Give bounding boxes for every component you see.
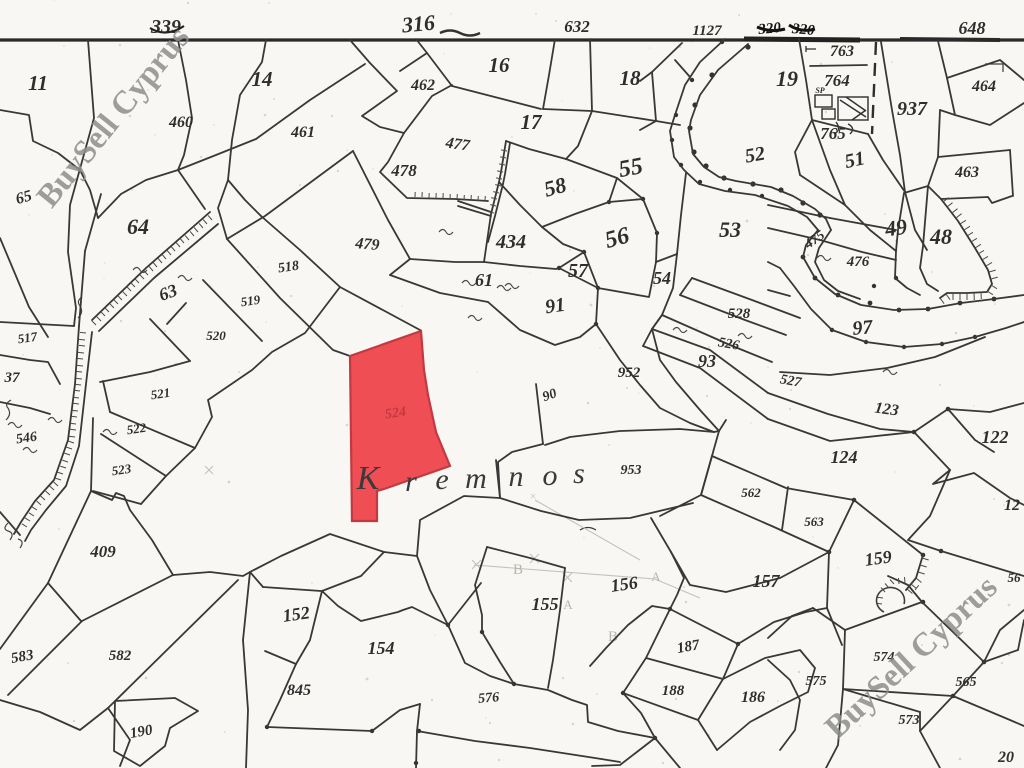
svg-text:97: 97 (852, 316, 875, 340)
svg-text:573: 573 (899, 713, 920, 728)
svg-text:461: 461 (290, 124, 315, 141)
svg-text:479: 479 (354, 235, 380, 254)
svg-text:57: 57 (568, 260, 589, 282)
svg-text:56: 56 (1008, 570, 1022, 585)
svg-text:52: 52 (743, 143, 767, 168)
svg-text:409: 409 (89, 542, 116, 561)
svg-text:953: 953 (621, 463, 642, 478)
svg-text:316: 316 (400, 10, 436, 38)
svg-text:519: 519 (240, 292, 262, 310)
svg-text:648: 648 (959, 18, 986, 38)
svg-text:49: 49 (882, 214, 908, 242)
svg-text:K: K (356, 460, 382, 497)
svg-text:565: 565 (956, 675, 977, 690)
svg-text:521: 521 (150, 385, 171, 403)
svg-text:16: 16 (489, 53, 511, 77)
svg-text:A: A (563, 597, 573, 612)
svg-text:e: e (435, 463, 448, 496)
svg-text:18: 18 (620, 66, 642, 90)
svg-text:155: 155 (532, 594, 559, 614)
svg-text:m: m (465, 462, 487, 495)
svg-text:478: 478 (390, 161, 417, 180)
svg-text:20: 20 (997, 749, 1014, 766)
svg-text:520: 520 (206, 328, 226, 343)
svg-text:434: 434 (495, 231, 526, 253)
svg-text:55: 55 (617, 153, 645, 183)
svg-text:575: 575 (806, 674, 827, 689)
svg-text:156: 156 (609, 572, 639, 596)
svg-text:937: 937 (897, 98, 928, 120)
svg-text:o: o (543, 459, 558, 492)
svg-text:188: 188 (662, 683, 685, 699)
svg-text:48: 48 (929, 224, 952, 249)
svg-text:17: 17 (521, 110, 544, 134)
svg-text:s: s (573, 457, 585, 490)
svg-text:154: 154 (368, 638, 395, 658)
svg-text:765: 765 (820, 124, 846, 143)
svg-text:524: 524 (384, 405, 407, 423)
svg-text:53: 53 (719, 217, 741, 242)
svg-text:517: 517 (17, 329, 39, 347)
svg-text:64: 64 (127, 214, 149, 239)
svg-text:563: 563 (804, 514, 824, 529)
svg-text:r: r (405, 465, 417, 498)
svg-text:123: 123 (874, 399, 900, 419)
svg-text:×: × (530, 489, 537, 503)
svg-text:845: 845 (287, 682, 311, 699)
svg-text:582: 582 (109, 648, 132, 664)
svg-text:952: 952 (618, 365, 641, 381)
svg-text:61: 61 (475, 270, 493, 290)
svg-text:37: 37 (4, 370, 21, 386)
svg-text:528: 528 (728, 306, 751, 322)
svg-text:1127: 1127 (692, 23, 722, 39)
svg-text:SP: SP (815, 86, 824, 95)
svg-text:124: 124 (831, 447, 858, 467)
svg-text:122: 122 (982, 427, 1009, 447)
svg-text:14: 14 (252, 67, 273, 91)
svg-text:n: n (509, 460, 524, 493)
svg-text:11: 11 (28, 71, 48, 95)
svg-text:54: 54 (653, 268, 671, 288)
svg-text:91: 91 (544, 294, 567, 319)
svg-text:522: 522 (126, 420, 148, 438)
svg-text:152: 152 (281, 602, 311, 626)
svg-text:186: 186 (741, 689, 765, 706)
svg-text:632: 632 (564, 17, 590, 36)
svg-text:157: 157 (753, 571, 781, 591)
svg-text:576: 576 (478, 690, 500, 707)
svg-text:93: 93 (698, 351, 716, 371)
svg-text:464: 464 (971, 78, 996, 95)
svg-text:764: 764 (824, 71, 850, 90)
svg-text:19: 19 (776, 66, 798, 91)
svg-text:B: B (513, 562, 523, 578)
svg-text:546: 546 (15, 430, 38, 448)
svg-text:523: 523 (111, 461, 133, 479)
svg-text:12: 12 (1004, 497, 1020, 514)
svg-text:518: 518 (277, 259, 300, 277)
svg-text:159: 159 (863, 546, 893, 570)
svg-text:A: A (651, 569, 661, 584)
svg-text:476: 476 (846, 254, 870, 270)
svg-text:460: 460 (168, 114, 193, 131)
svg-text:477: 477 (444, 134, 472, 154)
svg-text:462: 462 (410, 77, 435, 94)
svg-text:463: 463 (954, 164, 979, 181)
svg-text:763: 763 (830, 43, 854, 60)
svg-text:562: 562 (741, 485, 761, 500)
